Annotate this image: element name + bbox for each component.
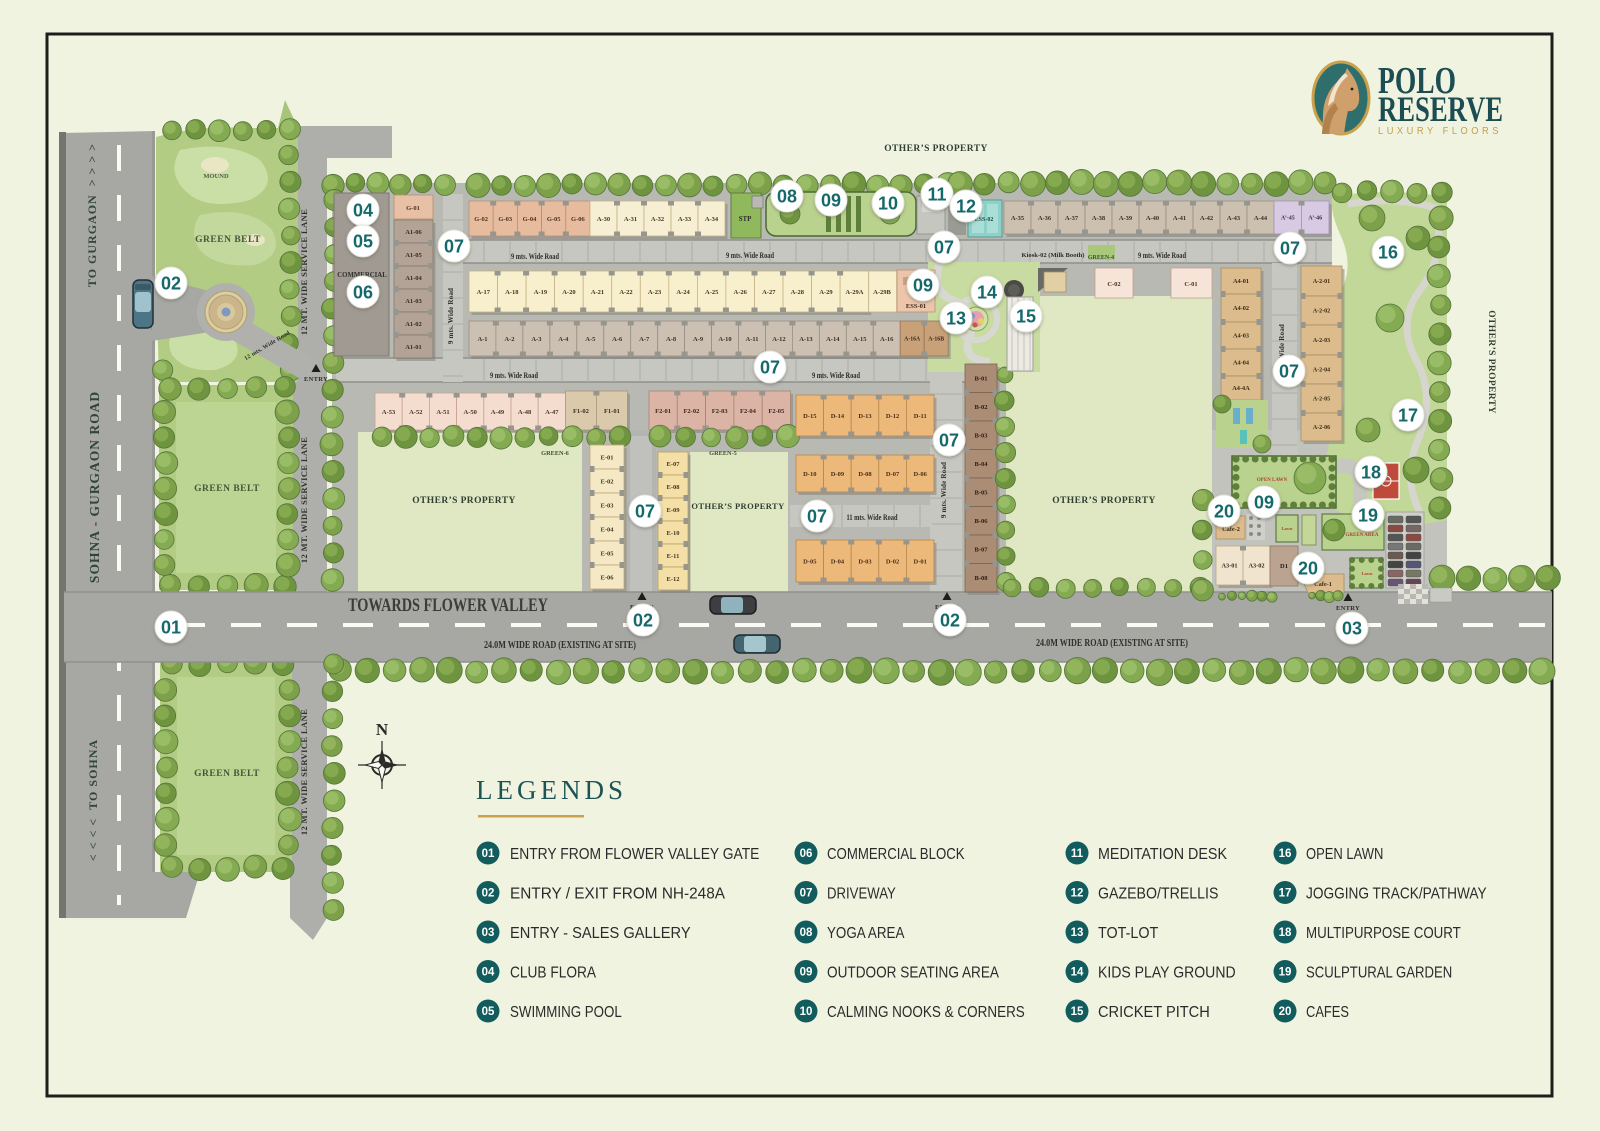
svg-text:A-39: A-39 (1119, 215, 1133, 222)
svg-text:A-15: A-15 (853, 336, 867, 343)
svg-text:A-2-03: A-2-03 (1313, 338, 1330, 344)
svg-text:A-1: A-1 (477, 336, 487, 343)
svg-text:A-12: A-12 (772, 336, 785, 343)
svg-text:A-40: A-40 (1146, 215, 1159, 222)
svg-text:A-32: A-32 (651, 216, 664, 223)
svg-text:OTHER’S PROPERTY: OTHER’S PROPERTY (884, 144, 987, 154)
svg-text:GREEN-6: GREEN-6 (541, 450, 569, 457)
svg-text:A-24: A-24 (676, 289, 690, 296)
svg-text:07: 07 (760, 358, 780, 378)
svg-text:A-4: A-4 (558, 336, 569, 343)
svg-text:MEDITATION DESK: MEDITATION DESK (1098, 846, 1227, 863)
svg-text:A-31: A-31 (624, 216, 637, 223)
svg-text:A-43: A-43 (1227, 215, 1241, 222)
svg-text:A-42: A-42 (1200, 215, 1213, 222)
svg-text:11 mts. Wide Road: 11 mts. Wide Road (847, 513, 898, 522)
svg-text:ENTRY: ENTRY (304, 376, 328, 383)
svg-text:B-07: B-07 (975, 547, 989, 554)
svg-text:A1-04: A1-04 (405, 275, 422, 282)
svg-text:F1-02: F1-02 (573, 408, 589, 415)
svg-text:G-04: G-04 (523, 216, 537, 223)
svg-text:A-29: A-29 (819, 289, 833, 296)
svg-text:10: 10 (800, 1006, 813, 1018)
svg-text:CLUB FLORA: CLUB FLORA (510, 965, 596, 982)
svg-text:9 mts. Wide Road: 9 mts. Wide Road (490, 371, 538, 380)
svg-text:06: 06 (353, 283, 373, 303)
svg-text:D1: D1 (1280, 563, 1288, 570)
svg-text:A-35: A-35 (1011, 215, 1025, 222)
svg-text:GREEN-4: GREEN-4 (1088, 255, 1114, 261)
svg-text:07: 07 (444, 237, 464, 257)
svg-text:GAZEBO/TRELLIS: GAZEBO/TRELLIS (1098, 886, 1218, 903)
svg-text:E-02: E-02 (601, 478, 614, 485)
svg-text:07: 07 (800, 888, 813, 900)
svg-text:A’-46: A’-46 (1308, 216, 1322, 222)
svg-text:D-01: D-01 (914, 558, 927, 565)
svg-text:12 MT. WIDE SERVICE LANE: 12 MT. WIDE SERVICE LANE (299, 437, 309, 563)
svg-text:E-11: E-11 (667, 553, 680, 560)
svg-text:15: 15 (1016, 307, 1036, 327)
svg-text:A-38: A-38 (1092, 215, 1106, 222)
svg-text:07: 07 (807, 507, 827, 527)
svg-text:A-16B: A-16B (928, 337, 944, 343)
svg-text:A1-05: A1-05 (405, 252, 422, 259)
svg-text:OTHER’S PROPERTY: OTHER’S PROPERTY (1052, 496, 1155, 506)
svg-text:A4-01: A4-01 (1233, 278, 1249, 285)
svg-text:OUTDOOR SEATING AREA: OUTDOOR SEATING AREA (827, 965, 999, 982)
svg-text:A-2-05: A-2-05 (1313, 397, 1330, 403)
svg-text:05: 05 (482, 1006, 495, 1018)
svg-text:E-10: E-10 (667, 530, 680, 537)
svg-text:07: 07 (934, 238, 954, 258)
svg-text:A-14: A-14 (826, 336, 840, 343)
svg-text:MULTIPURPOSE COURT: MULTIPURPOSE COURT (1306, 925, 1461, 942)
svg-text:OTHER’S PROPERTY: OTHER’S PROPERTY (1486, 310, 1496, 413)
svg-text:E-09: E-09 (667, 507, 681, 514)
svg-text:GREEN AREA: GREEN AREA (1346, 533, 1379, 538)
svg-text:OTHER’S PROPERTY: OTHER’S PROPERTY (412, 496, 515, 506)
svg-text:02: 02 (161, 274, 181, 294)
svg-text:COMMERCIAL BLOCK: COMMERCIAL BLOCK (827, 846, 965, 863)
svg-text:C-02: C-02 (1107, 281, 1120, 288)
svg-text:07: 07 (635, 502, 655, 522)
svg-text:SCULPTURAL GARDEN: SCULPTURAL GARDEN (1306, 965, 1452, 982)
svg-text:D-03: D-03 (858, 558, 872, 565)
svg-text:CRICKET PITCH: CRICKET PITCH (1098, 1004, 1210, 1021)
svg-text:A-52: A-52 (409, 409, 422, 416)
svg-text:A-2: A-2 (504, 336, 514, 343)
svg-text:13: 13 (1071, 927, 1084, 939)
svg-text:08: 08 (800, 927, 813, 939)
svg-text:A-41: A-41 (1173, 215, 1186, 222)
svg-text:OPEN LAWN: OPEN LAWN (1257, 478, 1288, 483)
svg-text:MOUND: MOUND (203, 173, 229, 180)
svg-text:SOHNA - GURGAON ROAD: SOHNA - GURGAON ROAD (87, 391, 102, 583)
svg-text:24.0M WIDE ROAD (EXISTING AT S: 24.0M WIDE ROAD (EXISTING AT SITE) (1036, 638, 1188, 649)
svg-text:E-03: E-03 (601, 502, 615, 509)
svg-text:Kiosk-02 (Milk Booth): Kiosk-02 (Milk Booth) (1022, 252, 1085, 259)
svg-text:18: 18 (1279, 927, 1292, 939)
svg-text:12: 12 (956, 197, 976, 217)
svg-text:B-05: B-05 (975, 490, 989, 497)
svg-text:B-02: B-02 (975, 404, 988, 411)
svg-text:CAFES: CAFES (1306, 1004, 1349, 1021)
svg-text:A4-02: A4-02 (1233, 305, 1249, 312)
svg-text:A-3: A-3 (531, 336, 542, 343)
svg-text:A-7: A-7 (639, 336, 650, 343)
svg-text:Cafe-1: Cafe-1 (1314, 581, 1332, 588)
svg-text:A-10: A-10 (718, 336, 731, 343)
svg-text:09: 09 (913, 276, 933, 296)
svg-text:A-2-06: A-2-06 (1313, 425, 1330, 431)
svg-text:GREEN-5: GREEN-5 (709, 450, 737, 457)
svg-text:07: 07 (1280, 239, 1300, 259)
svg-text:CALMING NOOKS & CORNERS: CALMING NOOKS & CORNERS (827, 1004, 1025, 1021)
svg-text:E-05: E-05 (601, 550, 615, 557)
svg-text:D-15: D-15 (803, 413, 817, 420)
svg-text:24.0M WIDE ROAD (EXISTING AT S: 24.0M WIDE ROAD (EXISTING AT SITE) (484, 640, 636, 651)
svg-text:A-18: A-18 (505, 289, 519, 296)
svg-text:E-12: E-12 (667, 576, 680, 583)
svg-text:A-20: A-20 (562, 289, 575, 296)
svg-text:02: 02 (482, 888, 495, 900)
svg-text:RESERVE: RESERVE (1378, 89, 1503, 129)
svg-text:9 mts. Wide Road: 9 mts. Wide Road (726, 251, 774, 260)
svg-text:STP: STP (739, 215, 753, 223)
svg-text:SWIMMING POOL: SWIMMING POOL (510, 1004, 622, 1021)
svg-text:A-16A: A-16A (904, 337, 921, 343)
svg-text:19: 19 (1358, 506, 1378, 526)
svg-text:A-37: A-37 (1065, 215, 1079, 222)
svg-text:A-50: A-50 (464, 409, 477, 416)
svg-text:A-13: A-13 (799, 336, 813, 343)
svg-text:A-6: A-6 (612, 336, 623, 343)
svg-text:F1-01: F1-01 (604, 408, 620, 415)
svg-text:E-06: E-06 (601, 574, 615, 581)
svg-text:16: 16 (1279, 848, 1292, 860)
svg-text:A-51: A-51 (436, 409, 449, 416)
svg-text:A-23: A-23 (648, 289, 662, 296)
svg-text:F2-05: F2-05 (768, 408, 785, 415)
svg-text:A4-03: A4-03 (1233, 333, 1249, 340)
svg-text:07: 07 (1279, 362, 1299, 382)
svg-text:E-07: E-07 (667, 461, 681, 468)
svg-text:ESS-02: ESS-02 (975, 217, 994, 223)
svg-text:A-30: A-30 (597, 216, 610, 223)
svg-text:D-11: D-11 (914, 413, 927, 420)
svg-text:G-06: G-06 (571, 216, 585, 223)
svg-text:E-08: E-08 (667, 484, 681, 491)
svg-text:ENTRY - SALES GALLERY: ENTRY - SALES GALLERY (510, 925, 691, 942)
svg-text:20: 20 (1298, 559, 1318, 579)
svg-text:JOGGING TRACK/PATHWAY: JOGGING TRACK/PATHWAY (1306, 886, 1487, 903)
svg-text:B-04: B-04 (975, 461, 989, 468)
svg-text:B-01: B-01 (975, 376, 988, 383)
svg-text:14: 14 (977, 283, 997, 303)
svg-text:F2-02: F2-02 (683, 408, 699, 415)
svg-text:15: 15 (1071, 1006, 1084, 1018)
svg-text:F2-04: F2-04 (740, 408, 757, 415)
svg-text:LEGENDS: LEGENDS (476, 775, 627, 805)
svg-text:03: 03 (1342, 619, 1362, 639)
svg-text:9 mts. Wide Road: 9 mts. Wide Road (1138, 251, 1186, 260)
svg-text:A’-45: A’-45 (1281, 216, 1295, 222)
svg-text:13: 13 (946, 309, 966, 329)
svg-text:A3-01: A3-01 (1221, 563, 1237, 570)
svg-text:A-26: A-26 (734, 289, 748, 296)
svg-text:D-02: D-02 (886, 558, 899, 565)
svg-text:A-49: A-49 (491, 409, 505, 416)
svg-text:A-2-01: A-2-01 (1313, 279, 1330, 285)
svg-text:A1-02: A1-02 (405, 321, 422, 328)
svg-text:08: 08 (777, 187, 797, 207)
svg-text:TOWARDS FLOWER VALLEY: TOWARDS FLOWER VALLEY (348, 595, 548, 616)
svg-text:20: 20 (1279, 1006, 1292, 1018)
svg-text:B-08: B-08 (975, 575, 989, 582)
svg-text:OPEN LAWN: OPEN LAWN (1306, 846, 1383, 863)
svg-text:11: 11 (1071, 848, 1084, 860)
svg-text:A-47: A-47 (545, 409, 559, 416)
svg-text:02: 02 (633, 611, 653, 631)
svg-text:G-02: G-02 (474, 216, 488, 223)
svg-text:A-36: A-36 (1038, 215, 1052, 222)
svg-text:19: 19 (1279, 967, 1292, 979)
svg-text:17: 17 (1398, 406, 1418, 426)
svg-text:TOT-LOT: TOT-LOT (1098, 925, 1158, 942)
svg-text:9 mts. Wide Road: 9 mts. Wide Road (940, 462, 948, 518)
svg-text:ENTRY FROM FLOWER VALLEY GATE: ENTRY FROM FLOWER VALLEY GATE (510, 846, 759, 863)
svg-text:A-28: A-28 (791, 289, 805, 296)
svg-text:A-25: A-25 (705, 289, 719, 296)
svg-text:LUXURY FLOORS: LUXURY FLOORS (1378, 125, 1502, 137)
svg-text:A-53: A-53 (382, 409, 396, 416)
svg-text:Lawn: Lawn (1281, 526, 1293, 531)
svg-text:D-06: D-06 (914, 471, 928, 478)
svg-text:05: 05 (353, 232, 373, 252)
svg-text:ESS-01: ESS-01 (906, 303, 926, 310)
svg-text:A1-01: A1-01 (405, 344, 422, 351)
svg-text:D-09: D-09 (831, 471, 845, 478)
svg-text:9 mts. Wide Road: 9 mts. Wide Road (812, 371, 860, 380)
svg-text:D-14: D-14 (831, 413, 845, 420)
svg-text:B-03: B-03 (975, 433, 989, 440)
svg-text:17: 17 (1279, 888, 1292, 900)
svg-text:A-34: A-34 (705, 216, 719, 223)
svg-text:03: 03 (482, 927, 495, 939)
svg-text:A-48: A-48 (518, 409, 532, 416)
svg-text:B-06: B-06 (975, 518, 989, 525)
svg-text:04: 04 (482, 967, 495, 979)
svg-text:06: 06 (800, 848, 813, 860)
svg-text:01: 01 (482, 848, 495, 860)
svg-text:F2-03: F2-03 (712, 408, 729, 415)
svg-text:20: 20 (1214, 502, 1234, 522)
svg-text:10: 10 (878, 194, 898, 214)
svg-text:GREEN BELT: GREEN BELT (194, 484, 260, 494)
svg-text:A-33: A-33 (678, 216, 692, 223)
svg-text:A-29B: A-29B (873, 289, 891, 296)
svg-text:E-01: E-01 (601, 454, 614, 461)
svg-text:9 mts. Wide Road: 9 mts. Wide Road (511, 252, 559, 261)
svg-text:04: 04 (353, 201, 373, 221)
svg-text:07: 07 (939, 431, 959, 451)
svg-text:D-07: D-07 (886, 471, 900, 478)
svg-text:09: 09 (1254, 493, 1274, 513)
svg-text:A-21: A-21 (591, 289, 604, 296)
svg-text:G-05: G-05 (547, 216, 561, 223)
svg-text:A-8: A-8 (666, 336, 677, 343)
svg-text:A-2-04: A-2-04 (1313, 368, 1330, 374)
svg-text:A-29A: A-29A (845, 289, 863, 296)
svg-text:F2-01: F2-01 (655, 408, 671, 415)
svg-text:A-9: A-9 (693, 336, 704, 343)
svg-text:A-5: A-5 (585, 336, 596, 343)
svg-text:12: 12 (1071, 888, 1084, 900)
svg-text:01: 01 (161, 618, 181, 638)
svg-text:9 mts. Wide Road: 9 mts. Wide Road (447, 288, 455, 344)
svg-text:D-12: D-12 (886, 413, 899, 420)
svg-text:GREEN BELT: GREEN BELT (194, 769, 260, 779)
svg-text:A-11: A-11 (746, 336, 759, 343)
svg-text:DRIVEWAY: DRIVEWAY (827, 886, 896, 903)
svg-text:A-27: A-27 (762, 289, 776, 296)
svg-text:A1-06: A1-06 (405, 229, 422, 236)
svg-text:< < < < TO SOHNA: < < < < TO SOHNA (86, 739, 100, 861)
svg-text:16: 16 (1378, 243, 1398, 263)
svg-text:A-17: A-17 (477, 289, 491, 296)
svg-text:A4-4A: A4-4A (1232, 385, 1250, 392)
svg-text:ENTRY / EXIT FROM NH-248A: ENTRY / EXIT FROM NH-248A (510, 886, 725, 903)
svg-text:11: 11 (927, 185, 946, 205)
svg-text:A3-02: A3-02 (1248, 563, 1264, 570)
svg-text:14: 14 (1071, 967, 1084, 979)
svg-text:GREEN BELT: GREEN BELT (195, 235, 261, 245)
svg-text:A-2-02: A-2-02 (1313, 309, 1330, 315)
svg-text:A-22: A-22 (619, 289, 632, 296)
svg-text:ENTRY: ENTRY (1336, 605, 1360, 612)
svg-text:D-10: D-10 (803, 471, 816, 478)
svg-text:E-04: E-04 (601, 526, 615, 533)
svg-text:G-03: G-03 (498, 216, 512, 223)
svg-text:YOGA AREA: YOGA AREA (827, 925, 905, 942)
svg-text:TO GURGAON > > > >: TO GURGAON > > > > (85, 143, 99, 287)
svg-text:D-08: D-08 (858, 471, 872, 478)
svg-text:D-05: D-05 (803, 558, 817, 565)
svg-text:18: 18 (1361, 463, 1381, 483)
svg-text:D-13: D-13 (858, 413, 872, 420)
svg-text:KIDS PLAY GROUND: KIDS PLAY GROUND (1098, 965, 1236, 982)
svg-text:N: N (376, 720, 389, 739)
svg-text:Lawn: Lawn (1361, 571, 1373, 576)
svg-text:G-01: G-01 (406, 205, 420, 212)
svg-text:A-44: A-44 (1254, 215, 1268, 222)
svg-text:D-04: D-04 (831, 558, 845, 565)
svg-text:C-01: C-01 (1184, 281, 1197, 288)
svg-text:OTHER’S PROPERTY: OTHER’S PROPERTY (691, 501, 784, 511)
svg-text:A-16: A-16 (880, 336, 894, 343)
svg-text:02: 02 (940, 611, 960, 631)
svg-text:A-19: A-19 (534, 289, 548, 296)
svg-text:09: 09 (821, 191, 841, 211)
svg-text:A1-03: A1-03 (405, 298, 422, 305)
svg-text:09: 09 (800, 967, 813, 979)
svg-text:A4-04: A4-04 (1233, 360, 1250, 367)
